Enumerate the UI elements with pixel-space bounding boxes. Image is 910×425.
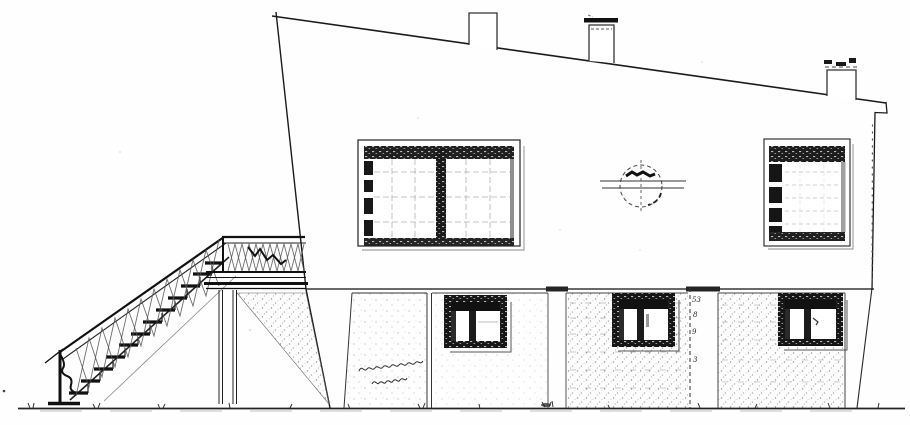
block-divider — [427, 293, 432, 408]
lower-window-3 — [778, 293, 847, 350]
stringer-shadow — [104, 276, 236, 401]
window-mullion — [804, 309, 811, 339]
dimension-figure-1: 53 — [692, 296, 701, 304]
window-mullion — [637, 309, 644, 340]
window-sill-mottle — [769, 232, 845, 241]
window-left-pane-shade — [619, 309, 624, 340]
dimension-figure-4: 3 — [693, 356, 698, 364]
window-left-stile — [769, 164, 782, 238]
right-eave — [872, 102, 887, 290]
upper-window-right — [764, 139, 853, 249]
window-left-pane-shade — [451, 311, 456, 341]
handrail-lower — [63, 243, 226, 359]
chimney-3-flue — [827, 70, 856, 100]
window-right-stile — [510, 159, 514, 238]
chimney-3 — [824, 58, 858, 100]
window-head — [451, 302, 500, 311]
elevation-drawing: 53 8 9 3 — [0, 0, 910, 425]
vent-scribble-top — [626, 172, 655, 176]
floor-cap-2 — [686, 287, 720, 292]
lower-window-2 — [612, 293, 679, 351]
chimney-2 — [584, 15, 618, 63]
window-right-stile — [841, 162, 846, 232]
roof-line — [272, 16, 886, 103]
right-lower-wall-line — [857, 288, 872, 408]
upper-window-left — [358, 140, 524, 250]
window-mullion-mottle — [436, 148, 446, 240]
window-pane-tick — [646, 314, 649, 327]
chimney-2-cap — [584, 18, 618, 23]
lower-block-a — [344, 293, 427, 408]
window-head-mottle — [769, 146, 845, 162]
elevation-canvas: 53 8 9 3 — [0, 0, 910, 425]
landing-posts — [219, 290, 237, 404]
floor-cap-1 — [546, 287, 568, 292]
chimney-3-cap — [824, 58, 856, 66]
window-mullion — [469, 311, 476, 341]
lower-window-1 — [444, 295, 511, 352]
vent-scribble-arc — [648, 193, 661, 205]
window-head — [619, 300, 668, 309]
circular-vent-detail — [600, 160, 686, 213]
scan-dot-left — [3, 390, 6, 393]
dimension-figure-3: 9 — [692, 328, 697, 336]
chimney-1 — [469, 13, 497, 50]
vent-horizontal-lines — [600, 181, 686, 188]
dimension-figure-2: 8 — [693, 311, 698, 319]
railing-scribble — [60, 354, 77, 393]
window-left-pane-shade — [785, 309, 790, 339]
chimney-1-flue — [469, 13, 497, 50]
lower-level: 53 8 9 3 — [344, 288, 845, 408]
external-staircase — [45, 237, 329, 404]
window-head — [785, 300, 836, 309]
landing-deck — [204, 272, 308, 289]
landing-support-fill — [237, 293, 329, 404]
chimney-2-flue — [589, 25, 614, 63]
window-left-stile — [364, 161, 373, 236]
